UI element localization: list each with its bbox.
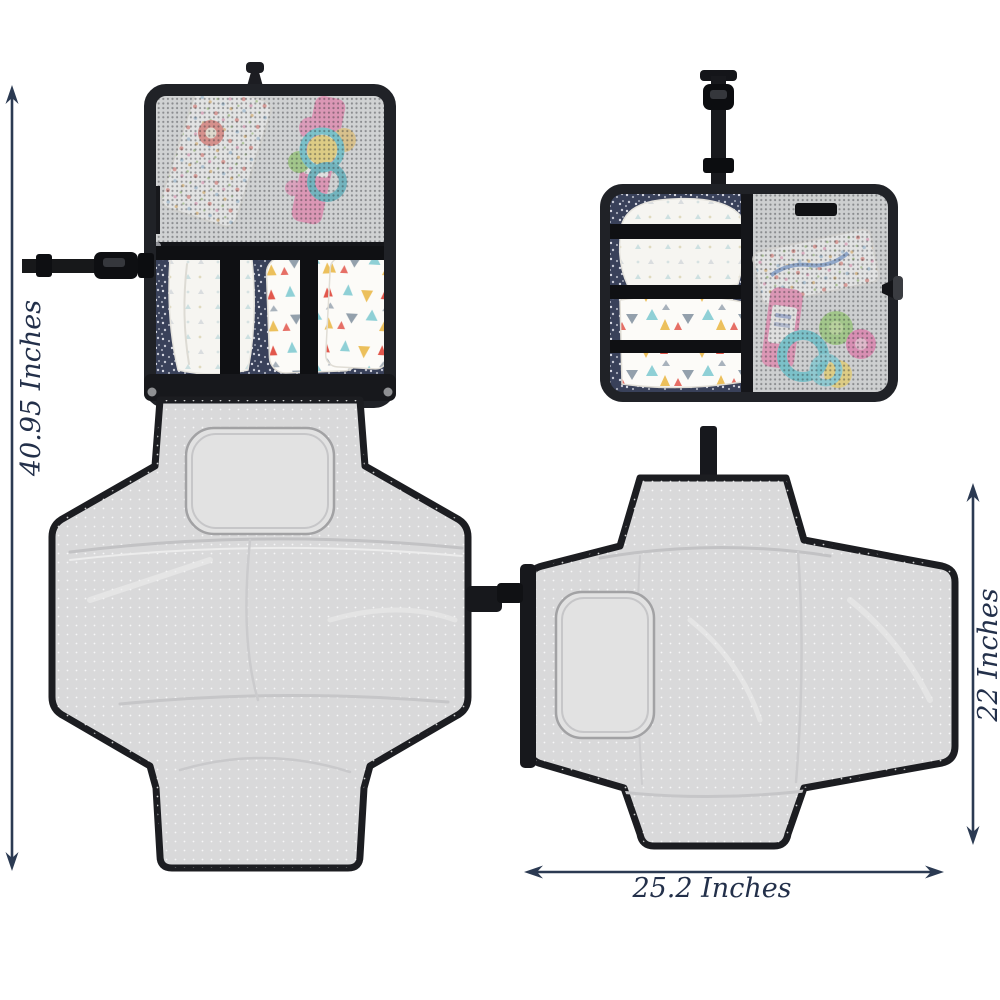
changing-mat-vertical (52, 400, 502, 868)
mesh-pocket (150, 90, 390, 246)
white-diaper (169, 254, 254, 374)
velcro-tab (795, 203, 837, 216)
view-changing-station-open-hanging (22, 62, 502, 868)
hanging-strap-with-buckle (700, 70, 737, 192)
head-pillow-area (186, 428, 334, 534)
elastic-strap (605, 340, 747, 353)
elastic-strap-horizontal (150, 246, 390, 260)
mat-side-tab (497, 583, 523, 603)
center-divider (741, 189, 753, 397)
elastic-strap-vertical (220, 246, 240, 380)
mat-width-dimension: 25.2 Inches (524, 866, 944, 905)
white-diaper (620, 199, 744, 291)
mat-height-dimension: 22 Inches (967, 483, 1000, 845)
mat-side-tab (466, 586, 502, 612)
view-changing-mat-flat (497, 426, 955, 846)
mat-top-strap (700, 426, 717, 482)
elastic-strap (605, 224, 747, 239)
elastic-strap (605, 285, 747, 299)
triangle-print-diaper (325, 256, 393, 369)
height-dimension: 40.95 Inches (6, 85, 48, 871)
elastic-strap-vertical (300, 246, 318, 380)
view-clutch-folded (605, 70, 903, 397)
height-label: 40.95 Inches (16, 300, 47, 477)
mesh-pocket (753, 189, 893, 397)
mat-width-label: 25.2 Inches (631, 873, 791, 904)
head-pillow-area (556, 592, 654, 738)
product-dimension-image: 40.95 Inches 22 Inches 25.2 Inches (0, 0, 1000, 1000)
mat-height-label: 22 Inches (973, 588, 1000, 722)
side-buckle-strap (22, 252, 154, 279)
